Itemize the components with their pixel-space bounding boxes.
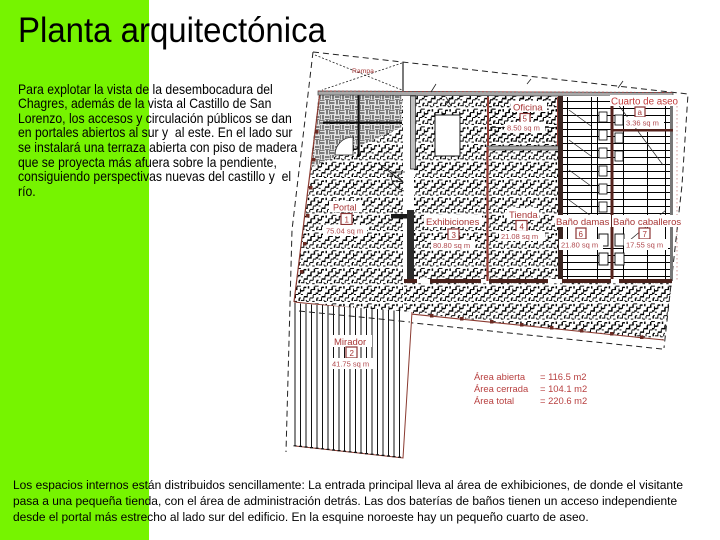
svg-text:4: 4	[520, 223, 525, 232]
svg-text:= 116.5 m2: = 116.5 m2	[540, 371, 586, 382]
svg-text:Área cerrada: Área cerrada	[474, 383, 529, 394]
svg-text:Área abierta: Área abierta	[474, 371, 526, 382]
svg-text:75.04 sq m: 75.04 sq m	[326, 227, 363, 236]
svg-text:21.80 sq m: 21.80 sq m	[561, 241, 598, 250]
svg-text:3: 3	[452, 231, 457, 240]
svg-text:41.75 sq m: 41.75 sq m	[332, 360, 369, 369]
svg-text:a: a	[638, 108, 643, 117]
svg-text:8.50 sq m: 8.50 sq m	[507, 124, 540, 133]
svg-text:7: 7	[643, 230, 648, 239]
svg-text:21.08 sq m: 21.08 sq m	[501, 232, 538, 241]
svg-text:Mirador: Mirador	[334, 337, 366, 348]
svg-text:1: 1	[345, 216, 350, 225]
svg-text:= 104.1 m2: = 104.1 m2	[540, 383, 587, 394]
svg-text:Baño damas: Baño damas	[556, 217, 610, 228]
svg-text:Tienda: Tienda	[509, 210, 538, 221]
svg-text:Exhibiciones: Exhibiciones	[426, 217, 480, 228]
svg-text:Cuarto de aseo: Cuarto de aseo	[611, 97, 679, 108]
svg-text:Área total: Área total	[474, 395, 514, 406]
svg-text:6: 6	[579, 230, 584, 239]
svg-text:Baño caballeros: Baño caballeros	[613, 217, 681, 228]
svg-text:Rampa: Rampa	[352, 68, 374, 75]
svg-text:= 220.6 m2: = 220.6 m2	[540, 395, 587, 406]
svg-text:2: 2	[350, 349, 355, 358]
svg-text:80.80 sq m: 80.80 sq m	[433, 241, 470, 250]
svg-text:Oficina: Oficina	[513, 103, 543, 114]
svg-text:3.36 sq m: 3.36 sq m	[626, 119, 659, 128]
svg-text:17.55 sq m: 17.55 sq m	[626, 241, 663, 250]
svg-text:Portal: Portal	[333, 203, 357, 213]
